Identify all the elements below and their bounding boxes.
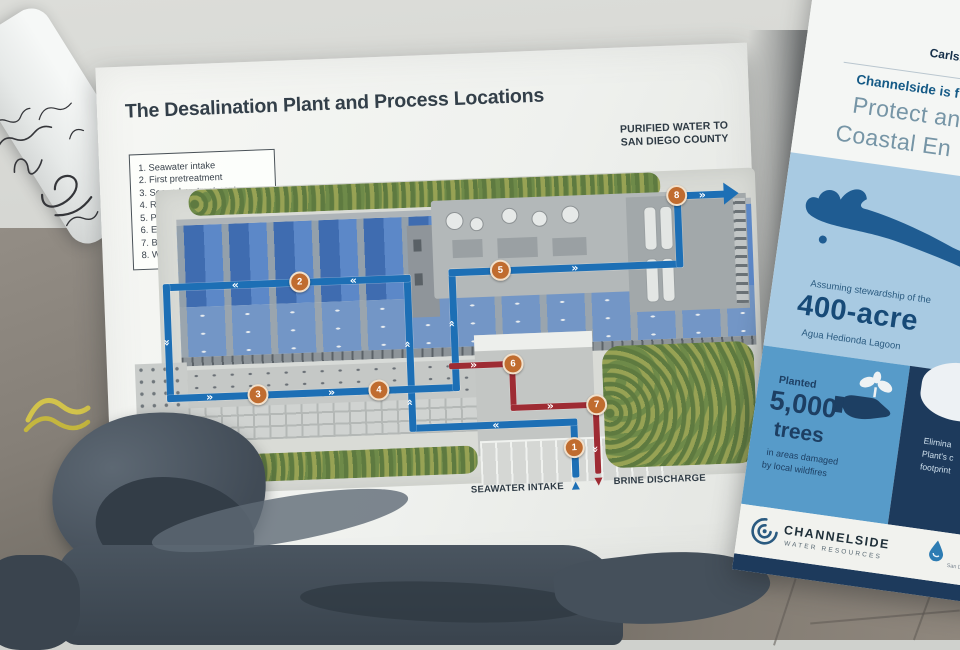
brine-discharge-label: BRINE DISCHARGE bbox=[613, 473, 706, 488]
blanket-corner bbox=[0, 555, 80, 650]
flow-chevron-icon: « bbox=[161, 339, 172, 347]
flow-chevron-icon: » bbox=[206, 391, 214, 402]
carbon-icon bbox=[917, 358, 960, 429]
flow-chevron-icon: » bbox=[698, 189, 706, 200]
clarifier-tank bbox=[445, 212, 464, 231]
poster-title: The Desalination Plant and Process Locat… bbox=[125, 85, 545, 124]
equipment-box bbox=[497, 237, 538, 259]
channelside-swirl-icon bbox=[748, 514, 782, 548]
flow-chevron-icon: « bbox=[492, 419, 500, 430]
outflow-arrowhead bbox=[723, 182, 739, 205]
flow-chevron-icon: « bbox=[589, 446, 600, 454]
brine-discharge-arrow bbox=[594, 478, 602, 486]
flow-chevron-icon: » bbox=[546, 400, 554, 411]
foliage-east bbox=[601, 341, 758, 469]
water-authority-drop-icon bbox=[927, 538, 946, 562]
seawater-intake-arrow bbox=[572, 481, 580, 489]
clarifier-tank bbox=[469, 217, 484, 232]
storage-tank bbox=[643, 206, 658, 250]
purified-water-label: PURIFIED WATER TO SAN DIEGO COUNTY bbox=[603, 119, 746, 151]
tower-window bbox=[413, 239, 421, 251]
tower-window bbox=[414, 273, 422, 285]
flow-chevron-icon: « bbox=[402, 341, 413, 349]
carbon-text: Elimina Plant's c footprint bbox=[919, 435, 956, 479]
equipment-box bbox=[552, 237, 587, 256]
water-authority-label: San Diego C bbox=[946, 563, 960, 573]
flow-chevron-icon: « bbox=[350, 275, 358, 286]
water-distribution-building bbox=[626, 193, 750, 313]
flow-chevron-icon: « bbox=[404, 399, 415, 407]
flow-chevron-icon: » bbox=[328, 387, 336, 398]
equipment-box bbox=[452, 239, 483, 258]
clarifier-tank bbox=[501, 208, 518, 225]
flow-chevron-icon: « bbox=[232, 279, 240, 290]
lagoon-panel: Assuming stewardship of the 400-acre Agu… bbox=[764, 152, 960, 383]
tile-grout-line bbox=[810, 609, 960, 624]
hand-plant-icon bbox=[832, 366, 901, 426]
clarifier-tank bbox=[531, 210, 548, 227]
yellow-cable bbox=[22, 382, 94, 438]
trees-panel: Planted 5,000 trees in areas damaged by … bbox=[741, 345, 910, 524]
flow-chevron-icon: « bbox=[446, 320, 457, 328]
flow-chevron-icon: » bbox=[470, 359, 478, 370]
clarifier-tank bbox=[561, 205, 580, 224]
storage-tank bbox=[659, 206, 674, 250]
flow-chevron-icon: » bbox=[571, 262, 579, 273]
